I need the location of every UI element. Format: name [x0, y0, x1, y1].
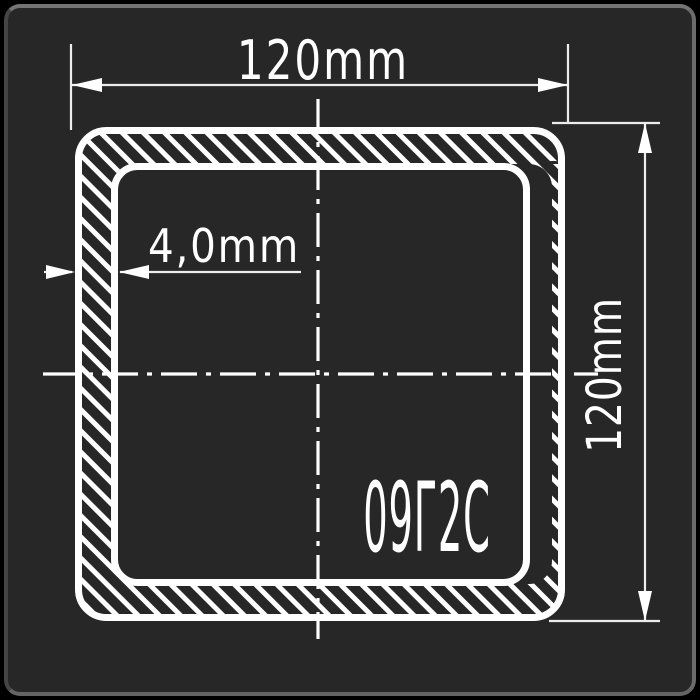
wall-thickness-label: 4,0mm — [148, 221, 300, 274]
drawing-stage: 120mm 120mm 4,0mm 09Г2С — [0, 0, 700, 700]
thickness-arrow-inner — [119, 265, 149, 279]
top-dimension-arrow-right — [538, 78, 568, 92]
right-dimension-arrow-top — [638, 123, 652, 153]
right-dimension-arrow-bottom — [638, 591, 652, 621]
top-dimension-arrow-left — [72, 78, 102, 92]
square-tube-cross-section-drawing: 120mm 120mm 4,0mm 09Г2С — [0, 0, 700, 700]
width-dimension-label: 120mm — [237, 30, 409, 92]
height-dimension-label: 120mm — [577, 297, 633, 453]
thickness-arrow-outer — [46, 265, 75, 279]
steel-grade-label: 09Г2С — [363, 463, 491, 575]
